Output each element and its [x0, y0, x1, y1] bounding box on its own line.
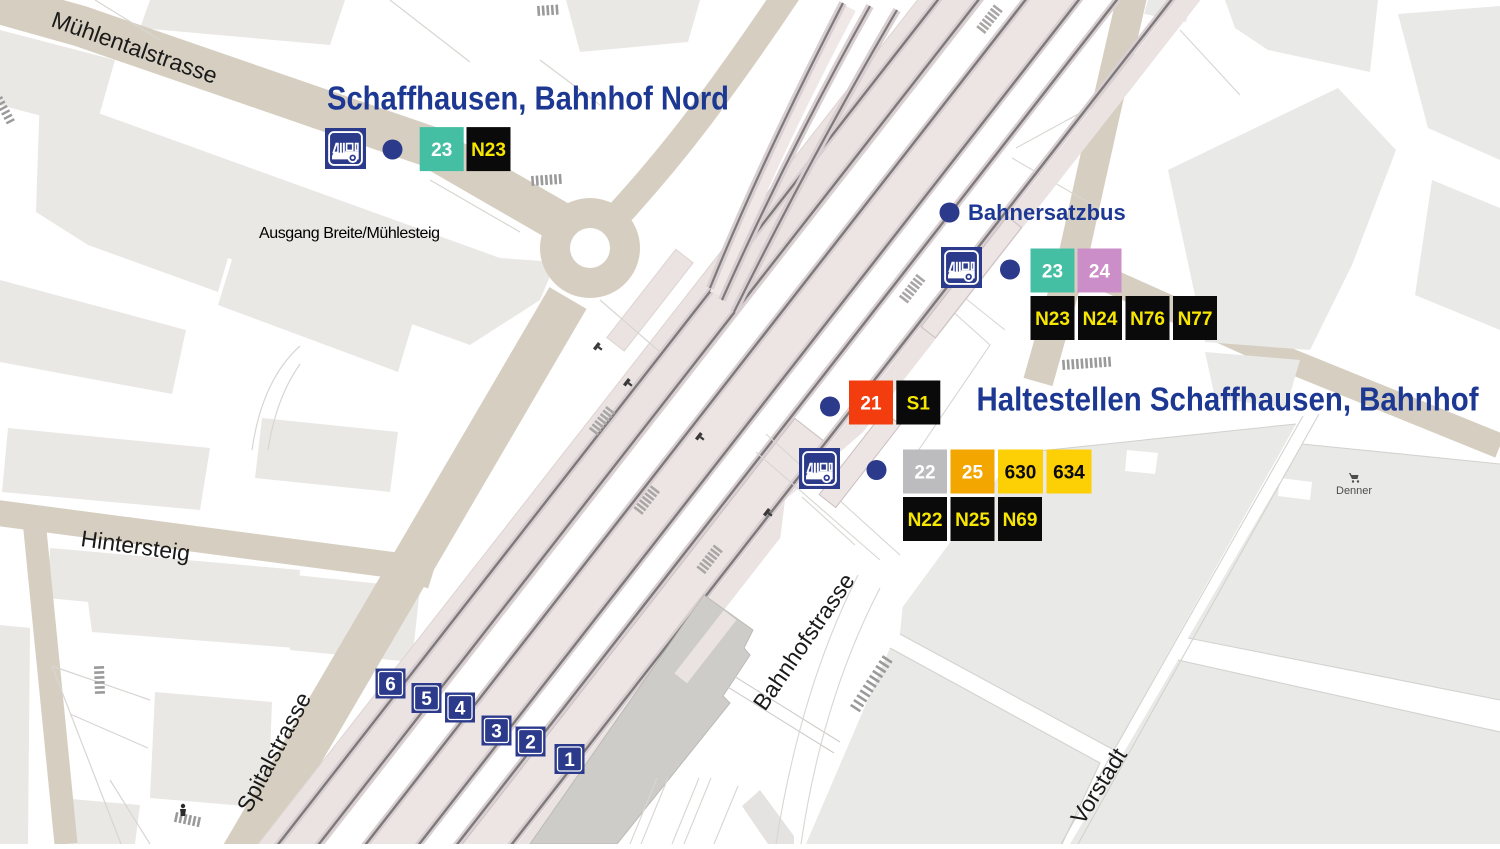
svg-text:N23: N23: [471, 140, 506, 161]
svg-text:N23: N23: [1035, 309, 1070, 330]
svg-text:Ausgang Breite/Mühlesteig: Ausgang Breite/Mühlesteig: [259, 225, 440, 242]
svg-text:630: 630: [1005, 462, 1037, 483]
svg-text:Bahnersatzbus: Bahnersatzbus: [968, 200, 1126, 225]
svg-text:Denner: Denner: [1336, 485, 1372, 497]
svg-text:N22: N22: [908, 510, 943, 531]
svg-text:24: 24: [1089, 261, 1111, 282]
svg-text:3: 3: [491, 722, 502, 743]
svg-text:N76: N76: [1130, 309, 1165, 330]
svg-text:N69: N69: [1003, 510, 1038, 531]
svg-text:N25: N25: [955, 510, 990, 531]
svg-text:21: 21: [860, 393, 882, 414]
svg-text:23: 23: [431, 140, 452, 161]
svg-text:2: 2: [525, 733, 536, 754]
svg-text:25: 25: [962, 462, 984, 483]
svg-text:N24: N24: [1083, 309, 1118, 330]
svg-text:23: 23: [1042, 261, 1063, 282]
svg-text:634: 634: [1053, 462, 1085, 483]
svg-text:1: 1: [564, 750, 575, 771]
svg-text:S1: S1: [907, 393, 931, 414]
svg-text:5: 5: [421, 689, 432, 710]
svg-text:6: 6: [385, 675, 396, 696]
svg-text:22: 22: [914, 462, 935, 483]
svg-text:Schaffhausen, Bahnhof Nord: Schaffhausen, Bahnhof Nord: [327, 80, 729, 117]
svg-text:Haltestellen Schaffhausen, Bah: Haltestellen Schaffhausen, Bahnhof: [977, 381, 1480, 418]
svg-text:4: 4: [455, 699, 466, 720]
svg-text:N77: N77: [1178, 309, 1213, 330]
